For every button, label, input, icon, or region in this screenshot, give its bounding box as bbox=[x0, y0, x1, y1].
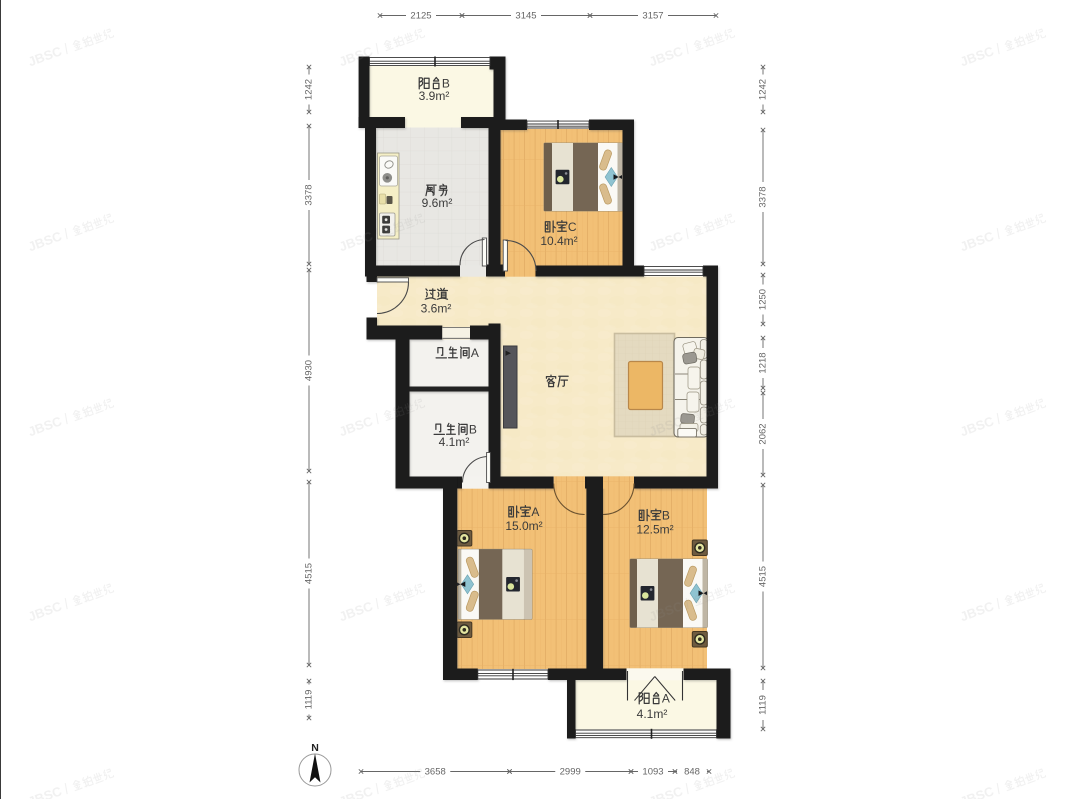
svg-text:848: 848 bbox=[684, 767, 700, 778]
svg-text:1250: 1250 bbox=[758, 289, 769, 310]
svg-text:JBSC: JBSC bbox=[337, 598, 375, 624]
svg-text:4.1m²: 4.1m² bbox=[439, 435, 470, 449]
svg-text:2999: 2999 bbox=[560, 767, 581, 778]
svg-text:12.5m²: 12.5m² bbox=[636, 523, 673, 537]
svg-text:1119: 1119 bbox=[758, 695, 769, 715]
svg-text:JBSC: JBSC bbox=[647, 43, 685, 69]
svg-text:4.1m²: 4.1m² bbox=[637, 707, 668, 721]
svg-text:A: A bbox=[531, 505, 539, 519]
svg-text:3378: 3378 bbox=[304, 184, 315, 205]
svg-text:JBSC: JBSC bbox=[26, 783, 64, 799]
svg-text:JBSC: JBSC bbox=[26, 43, 64, 69]
svg-text:1242: 1242 bbox=[758, 79, 769, 100]
svg-text:JBSC: JBSC bbox=[26, 598, 64, 624]
svg-text:C: C bbox=[568, 220, 577, 234]
svg-text:JBSC: JBSC bbox=[337, 783, 375, 799]
svg-text:JBSC: JBSC bbox=[958, 598, 996, 624]
svg-text:3157: 3157 bbox=[642, 11, 663, 22]
svg-text:2062: 2062 bbox=[758, 423, 769, 444]
svg-text:B: B bbox=[662, 508, 670, 522]
svg-text:9.6m²: 9.6m² bbox=[422, 196, 453, 210]
svg-text:3658: 3658 bbox=[425, 767, 446, 778]
svg-text:1218: 1218 bbox=[758, 352, 769, 373]
svg-text:JBSC: JBSC bbox=[958, 783, 996, 799]
svg-text:A: A bbox=[471, 346, 479, 360]
svg-text:4515: 4515 bbox=[304, 563, 315, 584]
svg-text:3145: 3145 bbox=[515, 11, 536, 22]
svg-text:JBSC: JBSC bbox=[958, 228, 996, 254]
svg-text:15.0m²: 15.0m² bbox=[505, 519, 542, 533]
svg-text:JBSC: JBSC bbox=[647, 783, 685, 799]
svg-text:N: N bbox=[311, 742, 319, 754]
svg-text:JBSC: JBSC bbox=[958, 43, 996, 69]
svg-text:JBSC: JBSC bbox=[26, 413, 64, 439]
svg-text:JBSC: JBSC bbox=[337, 413, 375, 439]
svg-text:JBSC: JBSC bbox=[958, 413, 996, 439]
svg-text:JBSC: JBSC bbox=[647, 228, 685, 254]
svg-text:4515: 4515 bbox=[758, 566, 769, 587]
svg-text:2125: 2125 bbox=[410, 11, 431, 22]
svg-text:A: A bbox=[662, 691, 670, 705]
svg-text:10.4m²: 10.4m² bbox=[540, 234, 577, 248]
svg-text:1093: 1093 bbox=[642, 767, 663, 778]
svg-text:3.9m²: 3.9m² bbox=[419, 89, 450, 103]
svg-text:JBSC: JBSC bbox=[26, 228, 64, 254]
svg-text:3378: 3378 bbox=[758, 186, 769, 207]
svg-text:1119: 1119 bbox=[304, 690, 315, 710]
svg-text:3.6m²: 3.6m² bbox=[421, 302, 452, 316]
svg-text:B: B bbox=[469, 422, 477, 436]
svg-text:1242: 1242 bbox=[304, 79, 315, 100]
svg-text:4930: 4930 bbox=[304, 360, 315, 381]
